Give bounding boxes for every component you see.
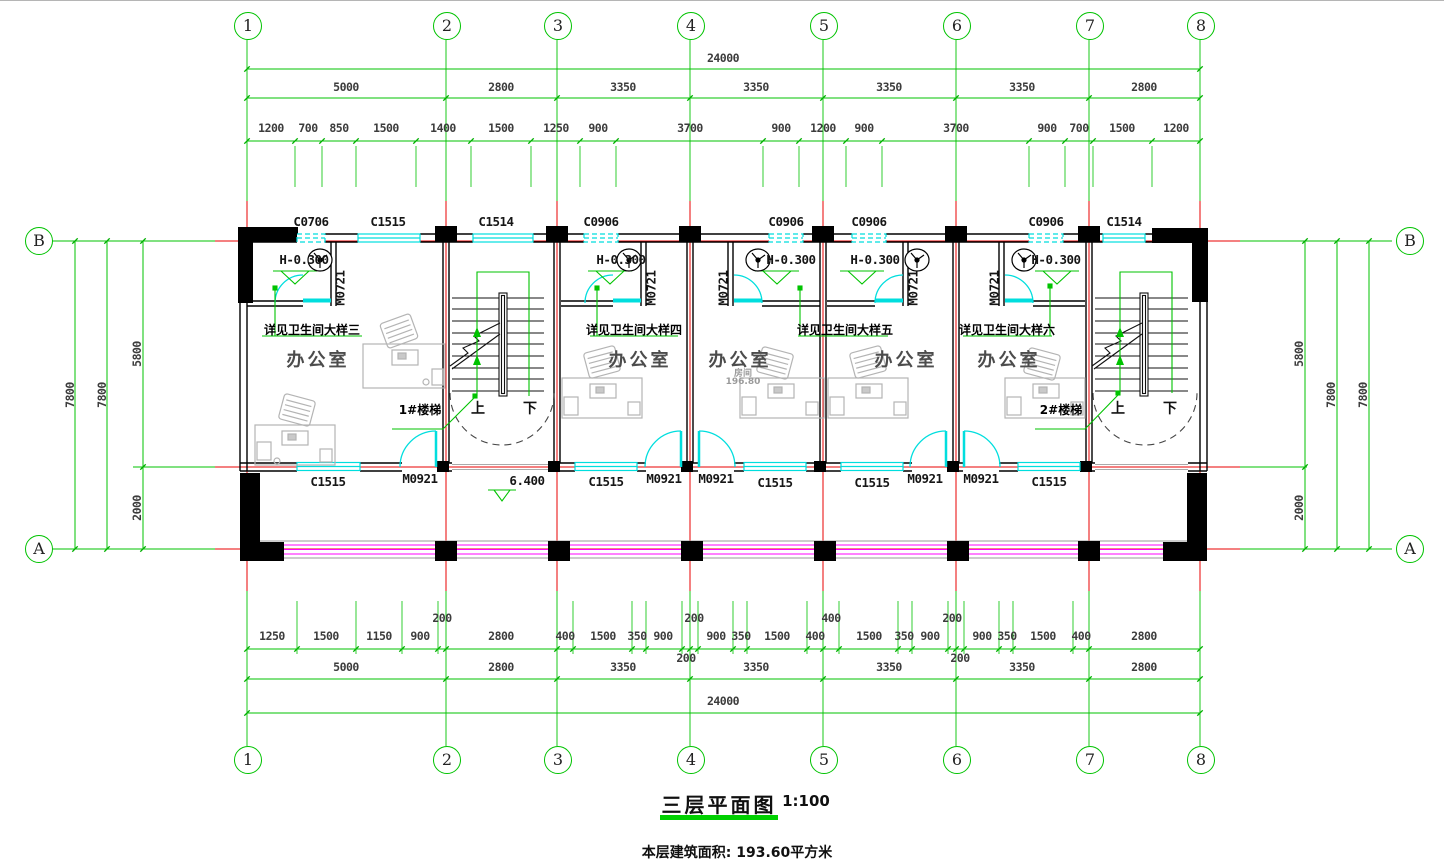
grid-bubble-A-right: A (1396, 535, 1424, 563)
dim-label: 350 (894, 629, 913, 643)
dim-label: 400 (1071, 629, 1090, 643)
dim-label: 200 (432, 611, 451, 625)
grid-bubble-7-top: 7 (1076, 12, 1104, 40)
dim-label: 3700 (677, 121, 703, 135)
dim-label: 700 (1069, 121, 1088, 135)
dim-label: 7800 (1356, 382, 1370, 408)
dim-label: 2000 (130, 495, 144, 521)
dim-label: 1500 (764, 629, 790, 643)
dim-label: 900 (410, 629, 429, 643)
dim-label: 900 (920, 629, 939, 643)
dim-label: 7800 (1324, 382, 1338, 408)
dim-label: 5000 (333, 660, 359, 674)
window-label: C1515 (370, 214, 405, 229)
door-label: M0721 (644, 270, 659, 305)
dim-label: 2800 (1131, 660, 1157, 674)
grid-bubble-6-bottom: 6 (943, 746, 971, 774)
window-label: C0906 (583, 214, 618, 229)
dim-label: 1500 (313, 629, 339, 643)
window-label: C1514 (478, 214, 513, 229)
dim-label: 1500 (373, 121, 399, 135)
dim-label: 2000 (1292, 495, 1306, 521)
stair-up-label: 上 (1111, 398, 1125, 418)
grid-bubble-1-bottom: 1 (234, 746, 262, 774)
dim-label: 900 (854, 121, 873, 135)
window-label: C1514 (1106, 214, 1141, 229)
dim-label: 2800 (488, 80, 514, 94)
door-label: M0921 (698, 471, 733, 486)
window-label: C0906 (851, 214, 886, 229)
dim-label: 350 (731, 629, 750, 643)
dim-label: 900 (588, 121, 607, 135)
grid-bubble-5-bottom: 5 (810, 746, 838, 774)
dim-label: 1200 (1163, 121, 1189, 135)
dim-label: 350 (627, 629, 646, 643)
dim-label: 3350 (743, 660, 769, 674)
grid-bubble-B-right: B (1396, 227, 1424, 255)
dim-label: 5800 (1292, 341, 1306, 367)
bath-note: 详见卫生间大样四 (586, 321, 682, 338)
dim-label: 200 (676, 651, 695, 665)
drawing-scale: 1:100 (782, 792, 830, 810)
dim-label: 3350 (610, 660, 636, 674)
dim-label: 900 (1037, 121, 1056, 135)
dim-label: 900 (771, 121, 790, 135)
room-name: 办公室 (287, 346, 350, 372)
dim-label: 3350 (610, 80, 636, 94)
dim-label: 3350 (876, 660, 902, 674)
bath-level-label: H-0.300 (279, 252, 328, 267)
dim-label: 24000 (707, 51, 739, 65)
dim-label: 24000 (707, 694, 739, 708)
dim-label: 400 (555, 629, 574, 643)
window-label: C1515 (854, 475, 889, 490)
dim-label: 2800 (1131, 80, 1157, 94)
dim-label: 2800 (488, 629, 514, 643)
dim-label: 1250 (543, 121, 569, 135)
window-label: C0906 (768, 214, 803, 229)
grid-bubble-2-top: 2 (433, 12, 461, 40)
level-label: 6.400 (509, 473, 544, 488)
dim-label: 1200 (258, 121, 284, 135)
grid-bubble-3-bottom: 3 (544, 746, 572, 774)
dim-label: 3350 (1009, 80, 1035, 94)
dim-label: 1150 (366, 629, 392, 643)
dim-label: 3350 (743, 80, 769, 94)
door-label: M0921 (963, 471, 998, 486)
room-name: 办公室 (978, 346, 1041, 372)
grid-bubble-2-bottom: 2 (433, 746, 461, 774)
dim-label: 850 (329, 121, 348, 135)
window-label: C1515 (310, 474, 345, 489)
fan-icon (308, 249, 1036, 271)
bath-note: 详见卫生间大样三 (264, 321, 360, 338)
dim-label: 350 (997, 629, 1016, 643)
stair-up-label: 上 (471, 398, 485, 418)
dim-label: 1250 (259, 629, 285, 643)
window-label: C1515 (588, 474, 623, 489)
bath-note: 详见卫生间大样五 (797, 321, 893, 338)
door-label: M0721 (987, 270, 1002, 305)
dim-label: 3700 (943, 121, 969, 135)
window-label: C0906 (1028, 214, 1063, 229)
door-label: M0721 (333, 270, 348, 305)
floor-plan-sheet: 1 2 3 4 5 6 7 8 1 2 3 4 5 6 7 8 B A B A … (0, 0, 1444, 866)
window-label: C0706 (293, 214, 328, 229)
room-name: 办公室 (875, 346, 938, 372)
window-label: C1515 (757, 475, 792, 490)
dim-label: 1500 (488, 121, 514, 135)
dim-label: 1500 (1109, 121, 1135, 135)
dim-label: 900 (653, 629, 672, 643)
window-label: C1515 (1031, 474, 1066, 489)
dim-label: 5800 (130, 341, 144, 367)
bath-level-label: H-0.300 (850, 252, 899, 267)
grid-bubble-4-top: 4 (677, 12, 705, 40)
grid-bubble-3-top: 3 (544, 12, 572, 40)
grid-bubble-4-bottom: 4 (677, 746, 705, 774)
grid-bubble-6-top: 6 (943, 12, 971, 40)
bath-note: 详见卫生间大样六 (959, 321, 1055, 338)
area-note: 本层建筑面积: 193.60平方米 (642, 842, 833, 862)
dim-label: 7800 (63, 382, 77, 408)
stair-down-label: 下 (1163, 398, 1177, 418)
stair-down-label: 下 (523, 398, 537, 418)
dim-label: 1500 (856, 629, 882, 643)
dim-label: 1500 (1030, 629, 1056, 643)
drawing-title: 三层平面图 (662, 789, 777, 818)
grid-bubble-B-left: B (25, 227, 53, 255)
stair-1 (450, 293, 554, 445)
plan-drawing (0, 1, 1444, 866)
dim-label: 3350 (1009, 660, 1035, 674)
dim-label: 900 (706, 629, 725, 643)
grid-bubble-5-top: 5 (810, 12, 838, 40)
dim-label: 400 (821, 611, 840, 625)
grid-bubble-8-bottom: 8 (1187, 746, 1215, 774)
dim-label: 2800 (488, 660, 514, 674)
dim-label: 200 (950, 651, 969, 665)
dim-label: 1400 (430, 121, 456, 135)
stair-name: 2#楼梯 (1040, 401, 1082, 418)
grid-bubble-1-top: 1 (234, 12, 262, 40)
dim-label: 2800 (1131, 629, 1157, 643)
dim-label: 400 (805, 629, 824, 643)
door-label: M0921 (907, 471, 942, 486)
door-label: M0721 (906, 270, 921, 305)
grid-bubble-A-left: A (25, 535, 53, 563)
dim-label: 7800 (95, 382, 109, 408)
corridor-railing (240, 541, 1207, 558)
dim-label: 1500 (590, 629, 616, 643)
bath-level-label: H-0.300 (596, 252, 645, 267)
door-label: M0921 (402, 471, 437, 486)
grid-bubble-7-bottom: 7 (1076, 746, 1104, 774)
stair-name: 1#楼梯 (399, 401, 441, 418)
room-area-tag: 196.80 (726, 377, 761, 387)
dim-label: 200 (684, 611, 703, 625)
dim-label: 200 (942, 611, 961, 625)
bath-level-label: H-0.300 (1031, 252, 1080, 267)
dim-label: 900 (972, 629, 991, 643)
dim-label: 1200 (810, 121, 836, 135)
grid-bubble-8-top: 8 (1187, 12, 1215, 40)
bath-level-label: H-0.300 (766, 252, 815, 267)
room-name: 办公室 (609, 346, 672, 372)
door-label: M0921 (646, 471, 681, 486)
stair-2 (1092, 293, 1197, 445)
door-label: M0721 (716, 270, 731, 305)
dim-label: 5000 (333, 80, 359, 94)
dim-label: 700 (298, 121, 317, 135)
dim-label: 3350 (876, 80, 902, 94)
